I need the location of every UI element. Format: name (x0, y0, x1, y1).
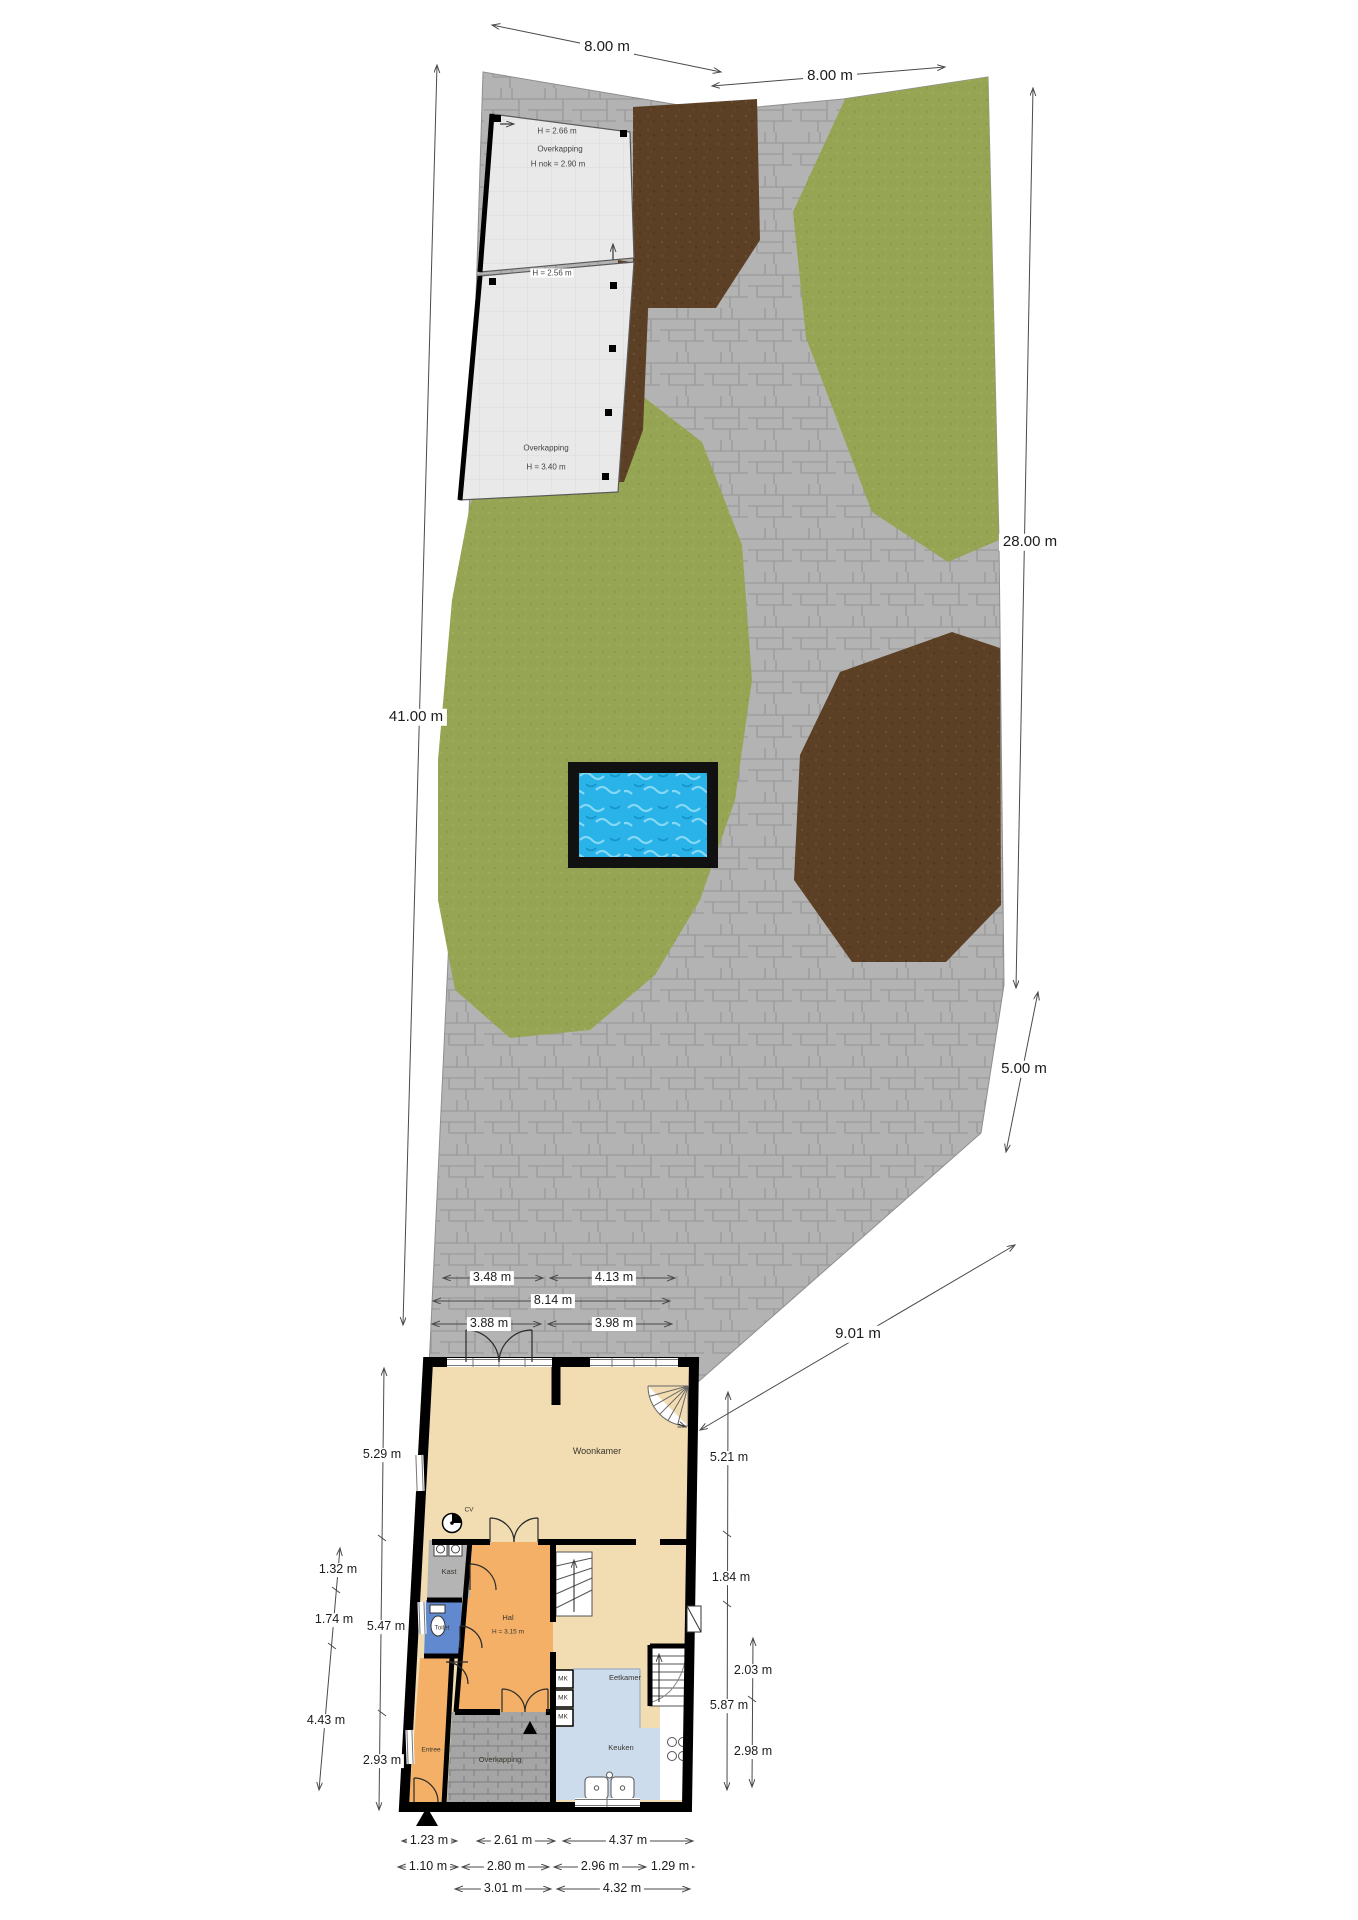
dim-label-398: 3.98 m (592, 1317, 636, 1331)
dim-label-293: 2.93 m (360, 1754, 404, 1768)
site-plan-drawing (0, 0, 1358, 1920)
room-label-overkapping: Overkapping (479, 1756, 522, 1764)
staircase-hall (556, 1552, 592, 1616)
house (404, 1330, 701, 1826)
dim-label-814: 8.14 m (531, 1294, 575, 1308)
dim-label-rear-diagonal: 9.01 m (831, 1326, 885, 1343)
room-label-keuken: Keuken (608, 1744, 633, 1752)
staircase-kitchen (650, 1648, 688, 1706)
pool (568, 762, 718, 868)
room-label-mk-1: MK (558, 1675, 568, 1682)
dim-label-174: 1.74 m (312, 1613, 356, 1627)
dim-label-388: 3.88 m (467, 1317, 511, 1331)
room-label-cv: CV (464, 1506, 473, 1513)
dim-label-184: 1.84 m (709, 1571, 753, 1585)
room-label-entree: Entree (421, 1746, 440, 1753)
carport-eave-height: H = 2.56 m (530, 269, 573, 278)
carport-top-height-ridge: H nok = 2.90 m (531, 160, 585, 169)
dim-label-547: 5.47 m (364, 1620, 408, 1634)
dim-label-right-upper: 28.00 m (999, 534, 1061, 551)
carport-main-label: Overkapping (523, 444, 568, 453)
carport-top-height-front: H = 2.66 m (537, 127, 576, 136)
dim-label-298: 2.98 m (731, 1745, 775, 1759)
dim-label-301: 3.01 m (481, 1882, 525, 1896)
dim-label-529: 5.29 m (360, 1448, 404, 1462)
dim-label-587: 5.87 m (707, 1699, 751, 1713)
dim-label-right-lower: 5.00 m (997, 1061, 1051, 1078)
room-label-toilet: Toilet (434, 1624, 449, 1631)
dim-label-top-right: 8.00 m (803, 68, 857, 85)
dim-label-443: 4.43 m (304, 1714, 348, 1728)
dim-label-top-left: 8.00 m (580, 39, 634, 56)
dim-label-413: 4.13 m (592, 1271, 636, 1285)
floor-plan: 8.00 m 8.00 m 41.00 m 28.00 m 5.00 m 9.0… (0, 0, 1358, 1920)
room-label-kast: Kast (441, 1568, 456, 1576)
carport-top-label: Overkapping (537, 145, 582, 154)
dim-label-521: 5.21 m (707, 1451, 751, 1465)
dim-label-296: 2.96 m (578, 1860, 622, 1874)
dim-label-left: 41.00 m (385, 709, 447, 726)
room-label-hal-height: H = 3.15 m (492, 1628, 524, 1635)
carport-main-height: H = 3.40 m (526, 463, 565, 472)
room-label-mk-2: MK (558, 1694, 568, 1701)
garden-area (428, 72, 1004, 1389)
boiler-symbol (443, 1514, 462, 1533)
carport-top (480, 114, 634, 272)
dim-label-437: 4.37 m (606, 1834, 650, 1848)
dim-label-203: 2.03 m (731, 1664, 775, 1678)
room-label-hal: Hal (502, 1614, 513, 1622)
room-label-woonkamer: Woonkamer (573, 1447, 621, 1457)
dim-label-129: 1.29 m (648, 1860, 692, 1874)
dim-label-348: 3.48 m (470, 1271, 514, 1285)
dim-label-123: 1.23 m (407, 1834, 451, 1848)
room-label-eetkamer: Eetkamer (609, 1674, 641, 1682)
dim-label-432: 4.32 m (600, 1882, 644, 1896)
dim-label-261: 2.61 m (491, 1834, 535, 1848)
dim-label-280: 2.80 m (484, 1860, 528, 1874)
room-label-mk-3: MK (558, 1713, 568, 1720)
dim-label-110: 1.10 m (406, 1860, 450, 1874)
dim-label-132: 1.32 m (316, 1563, 360, 1577)
